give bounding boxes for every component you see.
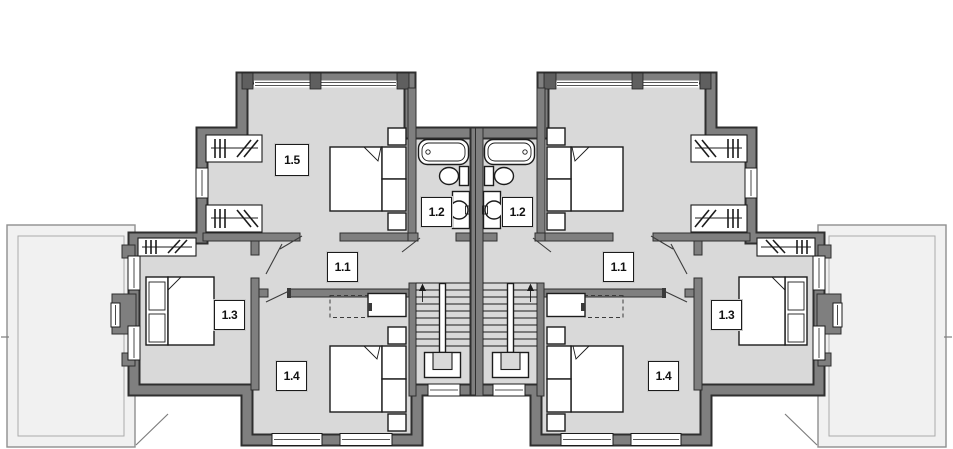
dresser [368,294,406,317]
room-label-1-1-right: 1.1 [603,252,634,282]
wall-bath-south [456,233,470,241]
stair-stringer [440,284,446,353]
room-label-1-5: 1.5 [275,144,309,176]
bathtub [419,140,469,165]
wall-door-stub [259,289,268,297]
room-label-1-2-left: 1.2 [421,197,452,227]
wall-hall-north [203,233,300,241]
wall-stair-west [409,283,416,396]
wall-room13-east [251,278,259,390]
wall-bath-south [408,233,418,241]
wall-room13-stub [251,241,259,255]
roof-slope-line [136,414,168,445]
facade-post [310,73,321,89]
double-bed [146,277,214,345]
nightstand [388,128,406,145]
nightstand [388,213,406,230]
room-label-1-3-right: 1.3 [711,300,742,330]
roof-window-symbol [138,238,196,256]
toilet [440,167,469,186]
room-label-1-4-left: 1.4 [276,361,307,391]
stair-well [433,353,452,370]
floor-plan-page: 1.5 1.2 1.2 1.1 1.1 1.3 1.3 1.4 1.4 [0,0,953,449]
left-unit [1,73,478,447]
room-label-1-4-right: 1.4 [648,361,679,391]
wall-hall-north [340,233,408,241]
nightstand [388,414,406,431]
facade-post [242,73,253,89]
roof-window-symbol [206,135,262,162]
wall-end-cap [287,288,291,298]
right-unit-mirrored [476,73,953,447]
facade-post [397,73,409,89]
washbasin [450,192,471,229]
floor-plan-canvas [0,0,953,449]
room-label-1-3-left: 1.3 [214,300,245,330]
nightstand [388,327,406,344]
room-label-1-2-right: 1.2 [502,197,533,227]
room-label-1-1-left: 1.1 [327,252,358,282]
wall-bedroom-bath [408,88,416,233]
roof-window-symbol [206,205,262,232]
